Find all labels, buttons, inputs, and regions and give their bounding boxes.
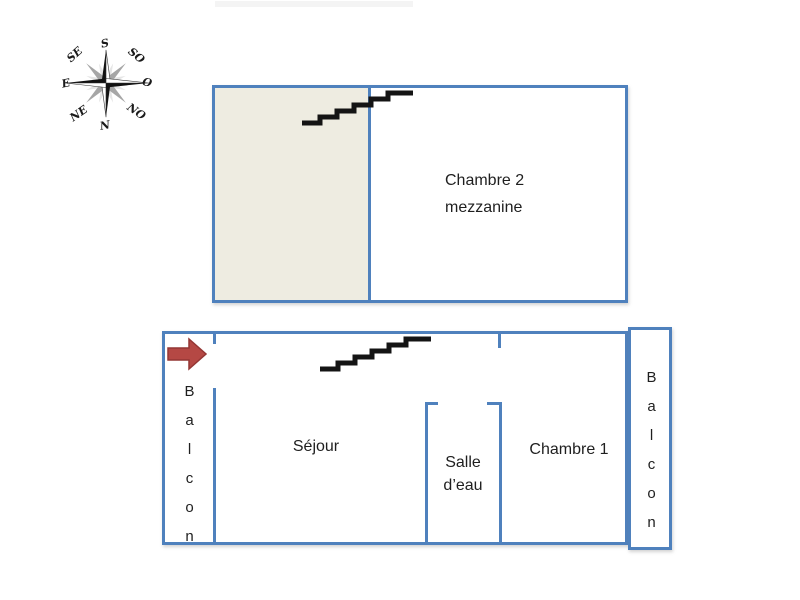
stairs-icon-upper <box>300 86 415 126</box>
room-label-chambre2-line1: Chambre 2 <box>445 167 524 194</box>
room-label-salle-deau-line2: d’eau <box>426 474 500 497</box>
room-label-chambre2: Chambre 2 mezzanine <box>445 167 524 221</box>
compass-label-west: O <box>141 75 154 90</box>
bedroom-wall-stub <box>498 334 501 348</box>
room-label-sejour: Séjour <box>268 433 364 460</box>
top-cropped-bar <box>215 1 413 7</box>
stairs-icon-lower <box>318 332 433 372</box>
compass-label-southwest: SO <box>125 45 147 66</box>
room-label-salle-deau-line1: Salle <box>426 451 500 474</box>
compass-label-northeast: NE <box>67 103 91 125</box>
room-label-salle-deau: Salle d’eau <box>426 451 500 497</box>
room-label-balcony-left: Balcon <box>180 383 198 558</box>
floor-plan-page: S SO O NO N NE E SE Chambre 2 mezzanine … <box>0 0 800 600</box>
left-balcony-wall-stub <box>213 334 216 344</box>
left-balcony-wall <box>213 388 216 542</box>
entrance-arrow-icon <box>167 337 207 371</box>
room-label-chambre1: Chambre 1 <box>518 436 620 463</box>
room-label-chambre2-line2: mezzanine <box>445 194 524 221</box>
room-label-balcony-right: Balcon <box>642 369 660 544</box>
compass-label-east: E <box>59 76 71 91</box>
compass-rose: S SO O NO N NE E SE <box>56 30 156 135</box>
compass-label-south: S <box>100 36 111 50</box>
compass-label-northwest: NO <box>124 100 149 123</box>
compass-label-southeast: SE <box>64 44 85 65</box>
compass-label-north: N <box>98 118 112 133</box>
